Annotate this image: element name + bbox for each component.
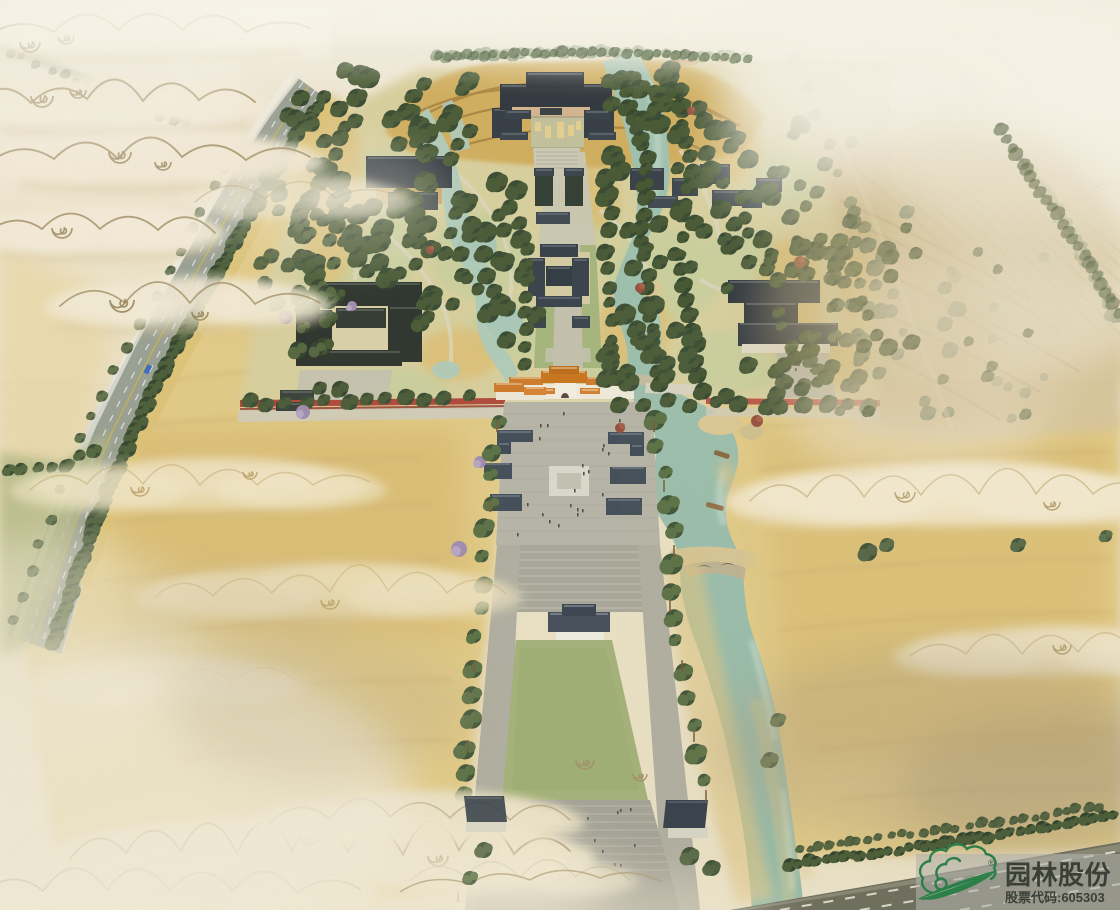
- svg-text:®: ®: [988, 858, 995, 868]
- svg-text:股票代码:605303: 股票代码:605303: [1005, 890, 1105, 905]
- svg-text:园林股份: 园林股份: [1005, 860, 1111, 890]
